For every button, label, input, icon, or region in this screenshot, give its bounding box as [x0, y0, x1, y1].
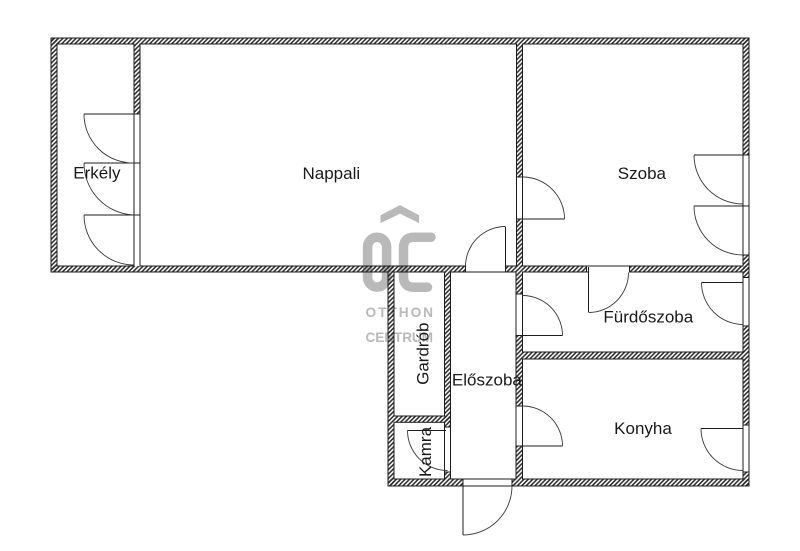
svg-text:Nappali: Nappali — [302, 164, 360, 183]
svg-text:Fürdőszoba: Fürdőszoba — [603, 308, 693, 327]
svg-text:Kamra: Kamra — [416, 426, 435, 477]
svg-text:Konyha: Konyha — [614, 419, 672, 438]
svg-text:Gardrób: Gardrób — [414, 323, 433, 385]
svg-text:Szoba: Szoba — [618, 164, 667, 183]
svg-text:OTTHON: OTTHON — [366, 305, 434, 320]
svg-text:Erkély: Erkély — [73, 164, 121, 183]
svg-text:Előszoba: Előszoba — [452, 371, 522, 390]
